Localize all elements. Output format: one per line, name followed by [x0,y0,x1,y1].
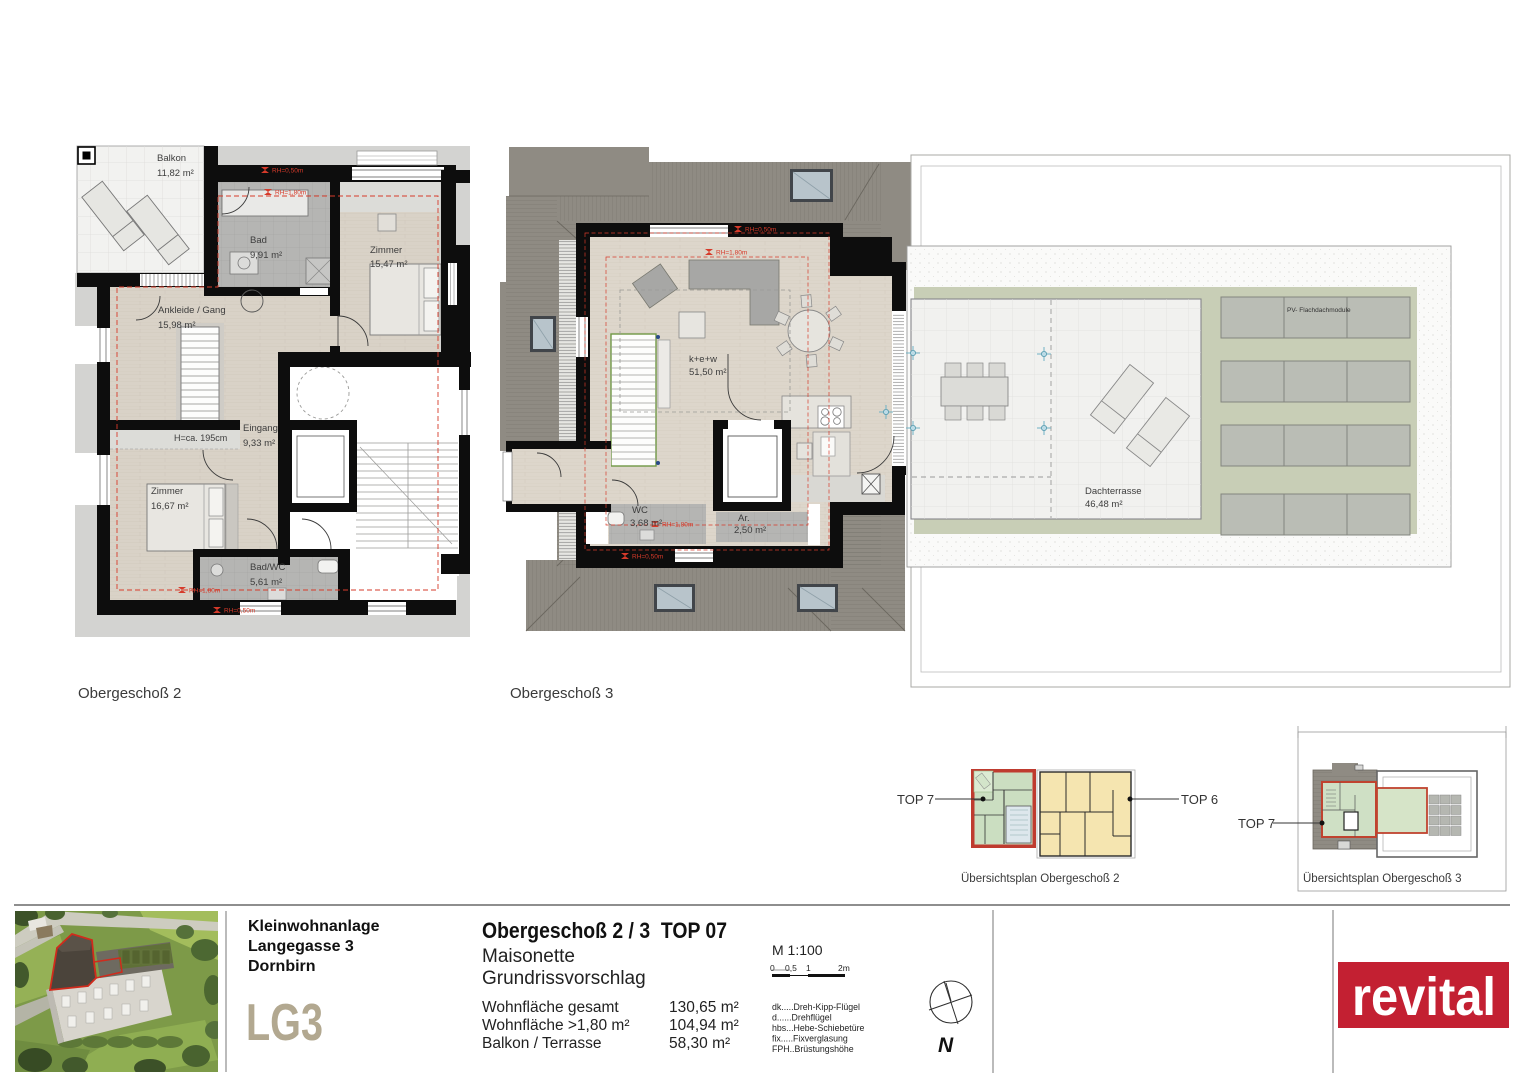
svg-text:dk.....Dreh-Kipp-Flügel: dk.....Dreh-Kipp-Flügel [772,1002,860,1012]
svg-text:Obergeschoß 2 / 3 TOP 07: Obergeschoß 2 / 3 TOP 07 [482,918,727,943]
svg-text:46,48 m²: 46,48 m² [1085,499,1123,510]
svg-text:Balkon: Balkon [157,153,186,164]
svg-text:Kleinwohnanlage: Kleinwohnanlage [248,918,380,935]
svg-text:k+e+w: k+e+w [689,354,717,365]
svg-text:5,61 m²: 5,61 m² [250,577,282,588]
svg-text:Eingang: Eingang [243,423,278,434]
svg-text:Bad: Bad [250,235,267,246]
svg-text:11,82 m²: 11,82 m² [157,168,194,179]
svg-text:RH=1,80m: RH=1,80m [662,522,693,529]
svg-text:Übersichtsplan Obergeschoß 3: Übersichtsplan Obergeschoß 3 [1303,873,1462,885]
svg-text:RH=1,80m: RH=1,80m [275,190,306,197]
svg-text:Maisonette: Maisonette [482,946,575,967]
svg-text:58,30 m²: 58,30 m² [669,1035,730,1052]
svg-text:TOP 7: TOP 7 [897,792,934,807]
svg-text:Übersichtsplan Obergeschoß 2: Übersichtsplan Obergeschoß 2 [961,873,1120,885]
svg-text:H=ca. 195cm: H=ca. 195cm [174,433,227,443]
svg-text:0: 0 [770,963,775,973]
svg-text:Balkon / Terrasse: Balkon / Terrasse [482,1035,601,1052]
svg-text:WC: WC [632,505,648,516]
svg-text:Bad/WC: Bad/WC [250,562,286,573]
svg-text:FPH..Brüstungshöhe: FPH..Brüstungshöhe [772,1044,854,1054]
svg-text:Obergeschoß 2: Obergeschoß 2 [78,685,181,702]
svg-text:RH=0,50m: RH=0,50m [745,227,776,234]
svg-text:1: 1 [806,963,811,973]
svg-text:N: N [938,1034,954,1057]
svg-text:Langegasse 3: Langegasse 3 [248,938,354,955]
svg-text:hbs...Hebe-Schiebetüre: hbs...Hebe-Schiebetüre [772,1023,865,1033]
svg-text:9,33 m²: 9,33 m² [243,438,275,449]
svg-text:RH=1,80m: RH=1,80m [189,588,220,595]
svg-text:3,68 m²: 3,68 m² [630,518,662,529]
svg-text:TOP 7: TOP 7 [1238,816,1275,831]
svg-text:Zimmer: Zimmer [151,486,183,497]
svg-text:130,65 m²: 130,65 m² [669,999,739,1016]
svg-text:104,94 m²: 104,94 m² [669,1017,739,1034]
svg-text:Ar.: Ar. [738,513,750,524]
svg-text:Wohnfläche >1,80 m²: Wohnfläche >1,80 m² [482,1017,629,1034]
svg-text:M 1:100: M 1:100 [772,942,823,958]
svg-text:Zimmer: Zimmer [370,245,402,256]
svg-text:Grundrissvorschlag: Grundrissvorschlag [482,968,646,989]
svg-text:Dornbirn: Dornbirn [248,958,316,975]
svg-text:Obergeschoß 3: Obergeschoß 3 [510,685,613,702]
svg-text:RH=0,50m: RH=0,50m [272,168,303,175]
svg-text:revital: revital [1352,967,1496,1027]
svg-text:16,67 m²: 16,67 m² [151,501,189,512]
svg-text:Ankleide / Gang: Ankleide / Gang [158,305,226,316]
svg-text:PV- Flachdachmodule: PV- Flachdachmodule [1287,307,1351,314]
svg-text:Wohnfläche gesamt: Wohnfläche gesamt [482,999,619,1016]
svg-text:d......Drehflügel: d......Drehflügel [772,1013,832,1023]
svg-text:15,98 m²: 15,98 m² [158,320,196,331]
svg-text:fix.....Fixverglasung: fix.....Fixverglasung [772,1034,848,1044]
svg-text:RH=0,50m: RH=0,50m [224,608,255,615]
svg-text:Dachterrasse: Dachterrasse [1085,486,1142,497]
svg-text:15,47 m²: 15,47 m² [370,259,408,270]
svg-text:9,91 m²: 9,91 m² [250,250,282,261]
svg-text:RH=1,80m: RH=1,80m [716,250,747,257]
svg-text:LG3: LG3 [246,994,323,1052]
svg-text:0,5: 0,5 [785,963,797,973]
svg-text:RH=0,50m: RH=0,50m [632,554,663,561]
svg-text:2,50 m²: 2,50 m² [734,525,766,536]
svg-text:TOP 6: TOP 6 [1181,792,1218,807]
svg-text:51,50 m²: 51,50 m² [689,367,727,378]
svg-text:2m: 2m [838,963,850,973]
